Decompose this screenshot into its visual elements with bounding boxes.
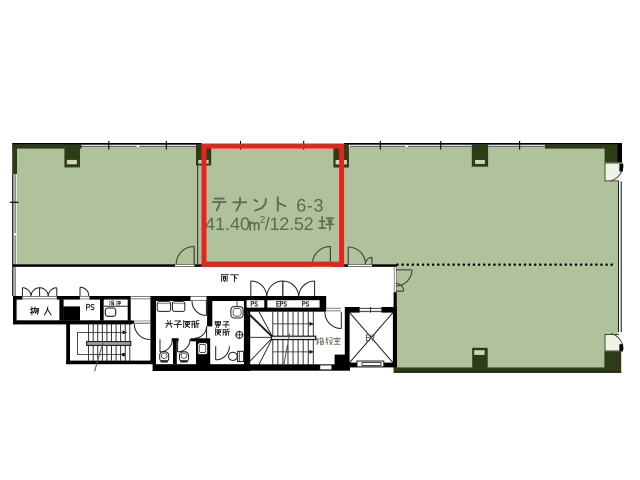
svg-text:/12.52: /12.52 [265,214,314,234]
svg-text:41.40: 41.40 [205,214,250,234]
svg-text:6-3: 6-3 [296,195,324,215]
